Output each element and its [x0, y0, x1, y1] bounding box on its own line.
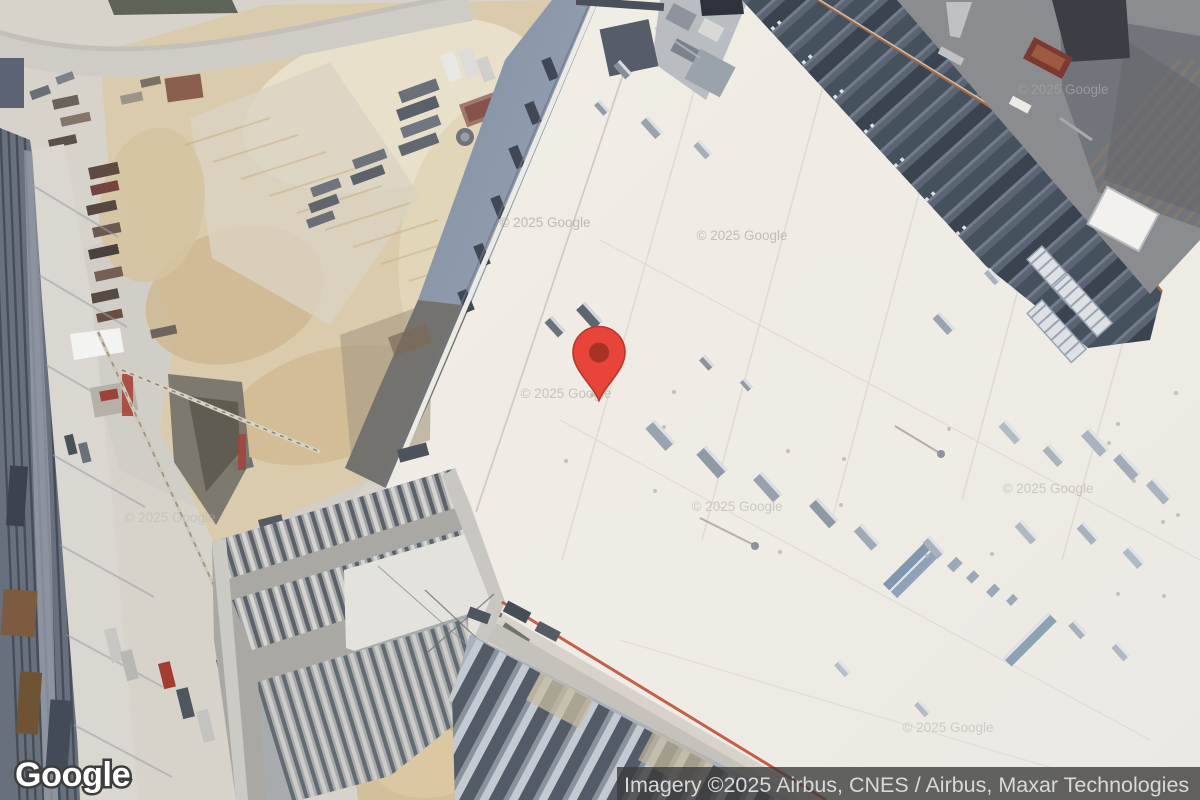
svg-text:Imagery ©2025 Airbus, CNES / A: Imagery ©2025 Airbus, CNES / Airbus, Max…: [624, 773, 1189, 797]
svg-text:Google: Google: [15, 756, 130, 794]
svg-text:© 2025 Google: © 2025 Google: [902, 720, 993, 735]
svg-text:© 2025 Google: © 2025 Google: [1017, 82, 1108, 97]
svg-text:© 2025 Google: © 2025 Google: [1002, 481, 1093, 496]
svg-text:© 2025 Google: © 2025 Google: [499, 215, 590, 230]
svg-text:© 2025 Google: © 2025 Google: [696, 228, 787, 243]
svg-text:© 2025 Google: © 2025 Google: [124, 510, 215, 525]
svg-text:© 2025 Google: © 2025 Google: [691, 499, 782, 514]
